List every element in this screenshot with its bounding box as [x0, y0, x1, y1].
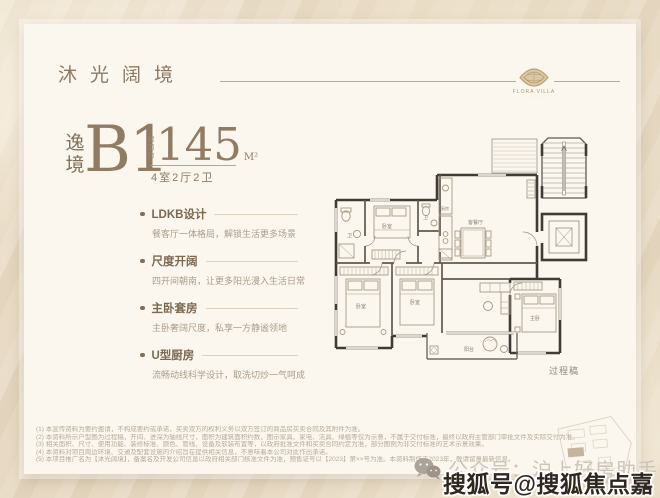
- series-title: 沐光阔境: [58, 60, 186, 87]
- room-label: 卧室: [410, 299, 420, 306]
- floor-plan: 卫 卧室 卫 厨房 客餐厅 卧室 卧室 主卧 阳台: [330, 136, 622, 372]
- furniture: [339, 178, 556, 354]
- feature-desc: 餐客厅一体格局，解锁生活更多场景: [152, 227, 298, 240]
- feature-desc: 主卧奢阔尺度，私享一方静谧领地: [152, 321, 298, 334]
- room-label: 卧室: [382, 223, 392, 230]
- feature-desc: 流畅动线科学设计，取洗切炒一气呵成: [152, 368, 298, 381]
- area-rule: [151, 165, 236, 166]
- room-label: 卫: [423, 215, 428, 221]
- room-label: 阳台: [464, 346, 474, 353]
- wechat-icon: [414, 457, 441, 480]
- room-label: 厨房: [441, 205, 449, 211]
- brand-subline: · · · · ·: [502, 96, 566, 100]
- feature-rule: [206, 308, 299, 309]
- disclaimer-line: (1) 本宣传资料为要约邀请，不构成要约或承诺，买卖双方的权利义务以双方签订的商…: [36, 426, 628, 434]
- rooms-label: 4室2厅2卫: [151, 169, 214, 185]
- feature-title: 主卧套房: [152, 300, 198, 316]
- bullet-icon: [140, 353, 145, 358]
- area-value: 145: [156, 122, 242, 167]
- feature-item: 尺度开阔 四开间朝南，让更多阳光漫入生活日常: [140, 253, 298, 287]
- area-row: 145 M²: [156, 122, 258, 167]
- brand-name: FLORA VILLA: [502, 89, 566, 95]
- poster-card: 沐光阔境 FLORA VILLA · · · · · 逸境 B1 建面约 145…: [24, 24, 636, 474]
- feature-desc: 四开间朝南，让更多阳光漫入生活日常: [152, 274, 298, 287]
- feature-list: LDKB设计 餐客厅一体格局，解锁生活更多场景 尺度开阔 四开间朝南，让更多阳光…: [140, 206, 298, 394]
- disclaimer-line: (3) 相关面积、尺寸、使用功能、装修标准、颜色、管线、设备及软装布置等，以政府…: [36, 441, 628, 449]
- area-unit: M²: [244, 152, 258, 163]
- bullet-icon: [140, 259, 145, 264]
- elevator: [541, 214, 587, 260]
- bullet-icon: [140, 212, 145, 217]
- stairwell: [542, 138, 586, 198]
- room-label: 卧室: [356, 303, 366, 310]
- brand-emblem-icon: [519, 68, 549, 87]
- brand-logo: FLORA VILLA · · · · ·: [502, 68, 566, 100]
- room-label: 客餐厅: [468, 219, 483, 226]
- feature-item: U型厨房 流畅动线科学设计，取洗切炒一气呵成: [140, 347, 298, 381]
- header-rule-left: [220, 81, 516, 82]
- feature-rule: [206, 261, 299, 262]
- room-label: 卫: [347, 233, 352, 239]
- feature-title: LDKB设计: [152, 206, 207, 222]
- feature-title: 尺度开阔: [152, 253, 198, 269]
- feature-rule: [214, 214, 298, 215]
- unit-prefix: 逸境: [64, 133, 86, 177]
- exterior-walls: [336, 175, 560, 353]
- feature-title: U型厨房: [152, 347, 195, 363]
- feature-item: LDKB设计 餐客厅一体格局，解锁生活更多场景: [140, 206, 298, 240]
- feature-rule: [202, 355, 298, 356]
- equipment-platform: [492, 139, 537, 173]
- bullet-icon: [140, 306, 145, 311]
- feature-item: 主卧套房 主卧奢阔尺度，私享一方静谧领地: [140, 300, 298, 334]
- draft-note: 过程稿: [549, 364, 579, 377]
- balcony-walls: [427, 333, 517, 359]
- sohu-watermark: 搜狐号@搜狐焦点嘉峪关站: [443, 465, 660, 498]
- poster-stage: 沐光阔境 FLORA VILLA · · · · · 逸境 B1 建面约 145…: [0, 0, 660, 498]
- disclaimer-line: (2) 本资料所示户型图为过程稿，开间、进深为轴线尺寸，面积为建筑面积约数，图示…: [36, 434, 628, 442]
- room-label: 主卧: [530, 315, 540, 322]
